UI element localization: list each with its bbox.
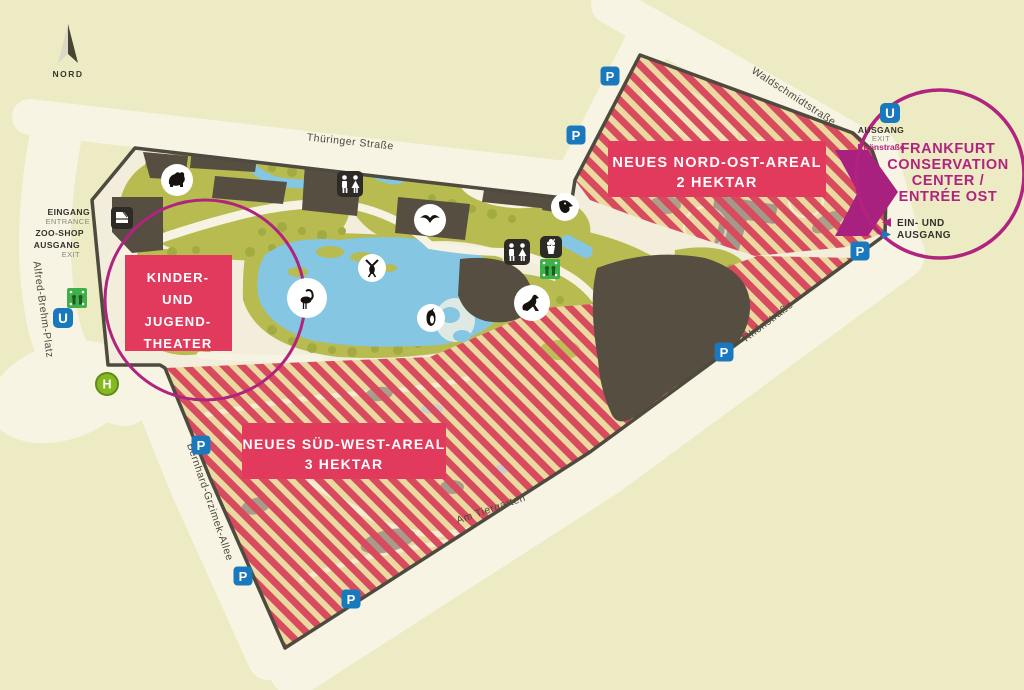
nordost-label-box: NEUES NORD-OST-AREAL 2 HEKTAR: [608, 141, 826, 197]
theater-line1: KINDER-: [147, 270, 210, 285]
west-ausgang-label: AUSGANG: [34, 240, 80, 250]
wc-icon: [504, 239, 530, 265]
zoo-map-page: KINDER- UND JUGEND- THEATER NEUES NORD-O…: [0, 0, 1024, 690]
theater-line3: JUGEND-: [145, 314, 212, 329]
gibbon-icon: [358, 254, 386, 282]
flamingo-icon: [287, 278, 327, 318]
tram-icon-letter: H: [102, 378, 111, 392]
nordost-line1: NEUES NORD-OST-AREAL: [612, 155, 821, 171]
parking-icon: P: [856, 244, 865, 259]
suedwest-line1: NEUES SÜD-WEST-AREAL: [243, 436, 446, 452]
parking-icon: P: [347, 592, 356, 607]
parking-icon: P: [197, 438, 206, 453]
playground-icon: [67, 288, 87, 308]
parking-icon: P: [606, 69, 615, 84]
east-rhoenstrasse-label: Rhönstraße: [857, 142, 905, 152]
fcc-line4: ENTRÉE OST: [899, 188, 998, 205]
ubahn-icon: U: [58, 311, 68, 326]
fcc-line2: CONSERVATION: [887, 157, 1009, 173]
suedwest-label-box: NEUES SÜD-WEST-AREAL 3 HEKTAR: [242, 423, 446, 479]
ubahn-icon: U: [885, 106, 895, 121]
west-eingang-label: EINGANG: [48, 207, 90, 217]
fcc-line3: CENTER /: [912, 173, 984, 189]
theater-line2: UND: [162, 292, 194, 307]
bear-icon: [161, 164, 193, 196]
food-kiosk-icon: [540, 236, 562, 258]
fcc-line1: FRANKFURT: [901, 141, 996, 157]
legend-ein-und: EIN- UND: [897, 218, 945, 229]
tram-stop-icon: H: [96, 373, 118, 395]
suedwest-line2: 3 HEKTAR: [305, 456, 384, 472]
flying-bird-icon: [414, 204, 446, 236]
parking-icon: P: [720, 345, 729, 360]
parking-icon: P: [572, 128, 581, 143]
west-entrance-label: ENTRANCE: [46, 217, 90, 226]
playground-icon: [540, 259, 560, 279]
north-label: NORD: [52, 69, 83, 79]
parking-icon: P: [239, 569, 248, 584]
wc-icon: [337, 171, 363, 197]
nordost-line2: 2 HEKTAR: [676, 175, 757, 191]
zoo-map: KINDER- UND JUGEND- THEATER NEUES NORD-O…: [0, 0, 1024, 690]
theater-label-box: KINDER- UND JUGEND- THEATER: [125, 255, 232, 351]
zoo-shop-icon: [111, 207, 133, 229]
west-exit-label: EXIT: [62, 250, 80, 259]
eagle-icon: [551, 193, 579, 221]
legend-ausgang: AUSGANG: [897, 230, 951, 241]
kangaroo-icon: [514, 285, 550, 321]
west-zooshop-label: ZOO-SHOP: [35, 228, 84, 238]
penguin-icon: [417, 304, 445, 332]
theater-line4: THEATER: [144, 336, 213, 351]
